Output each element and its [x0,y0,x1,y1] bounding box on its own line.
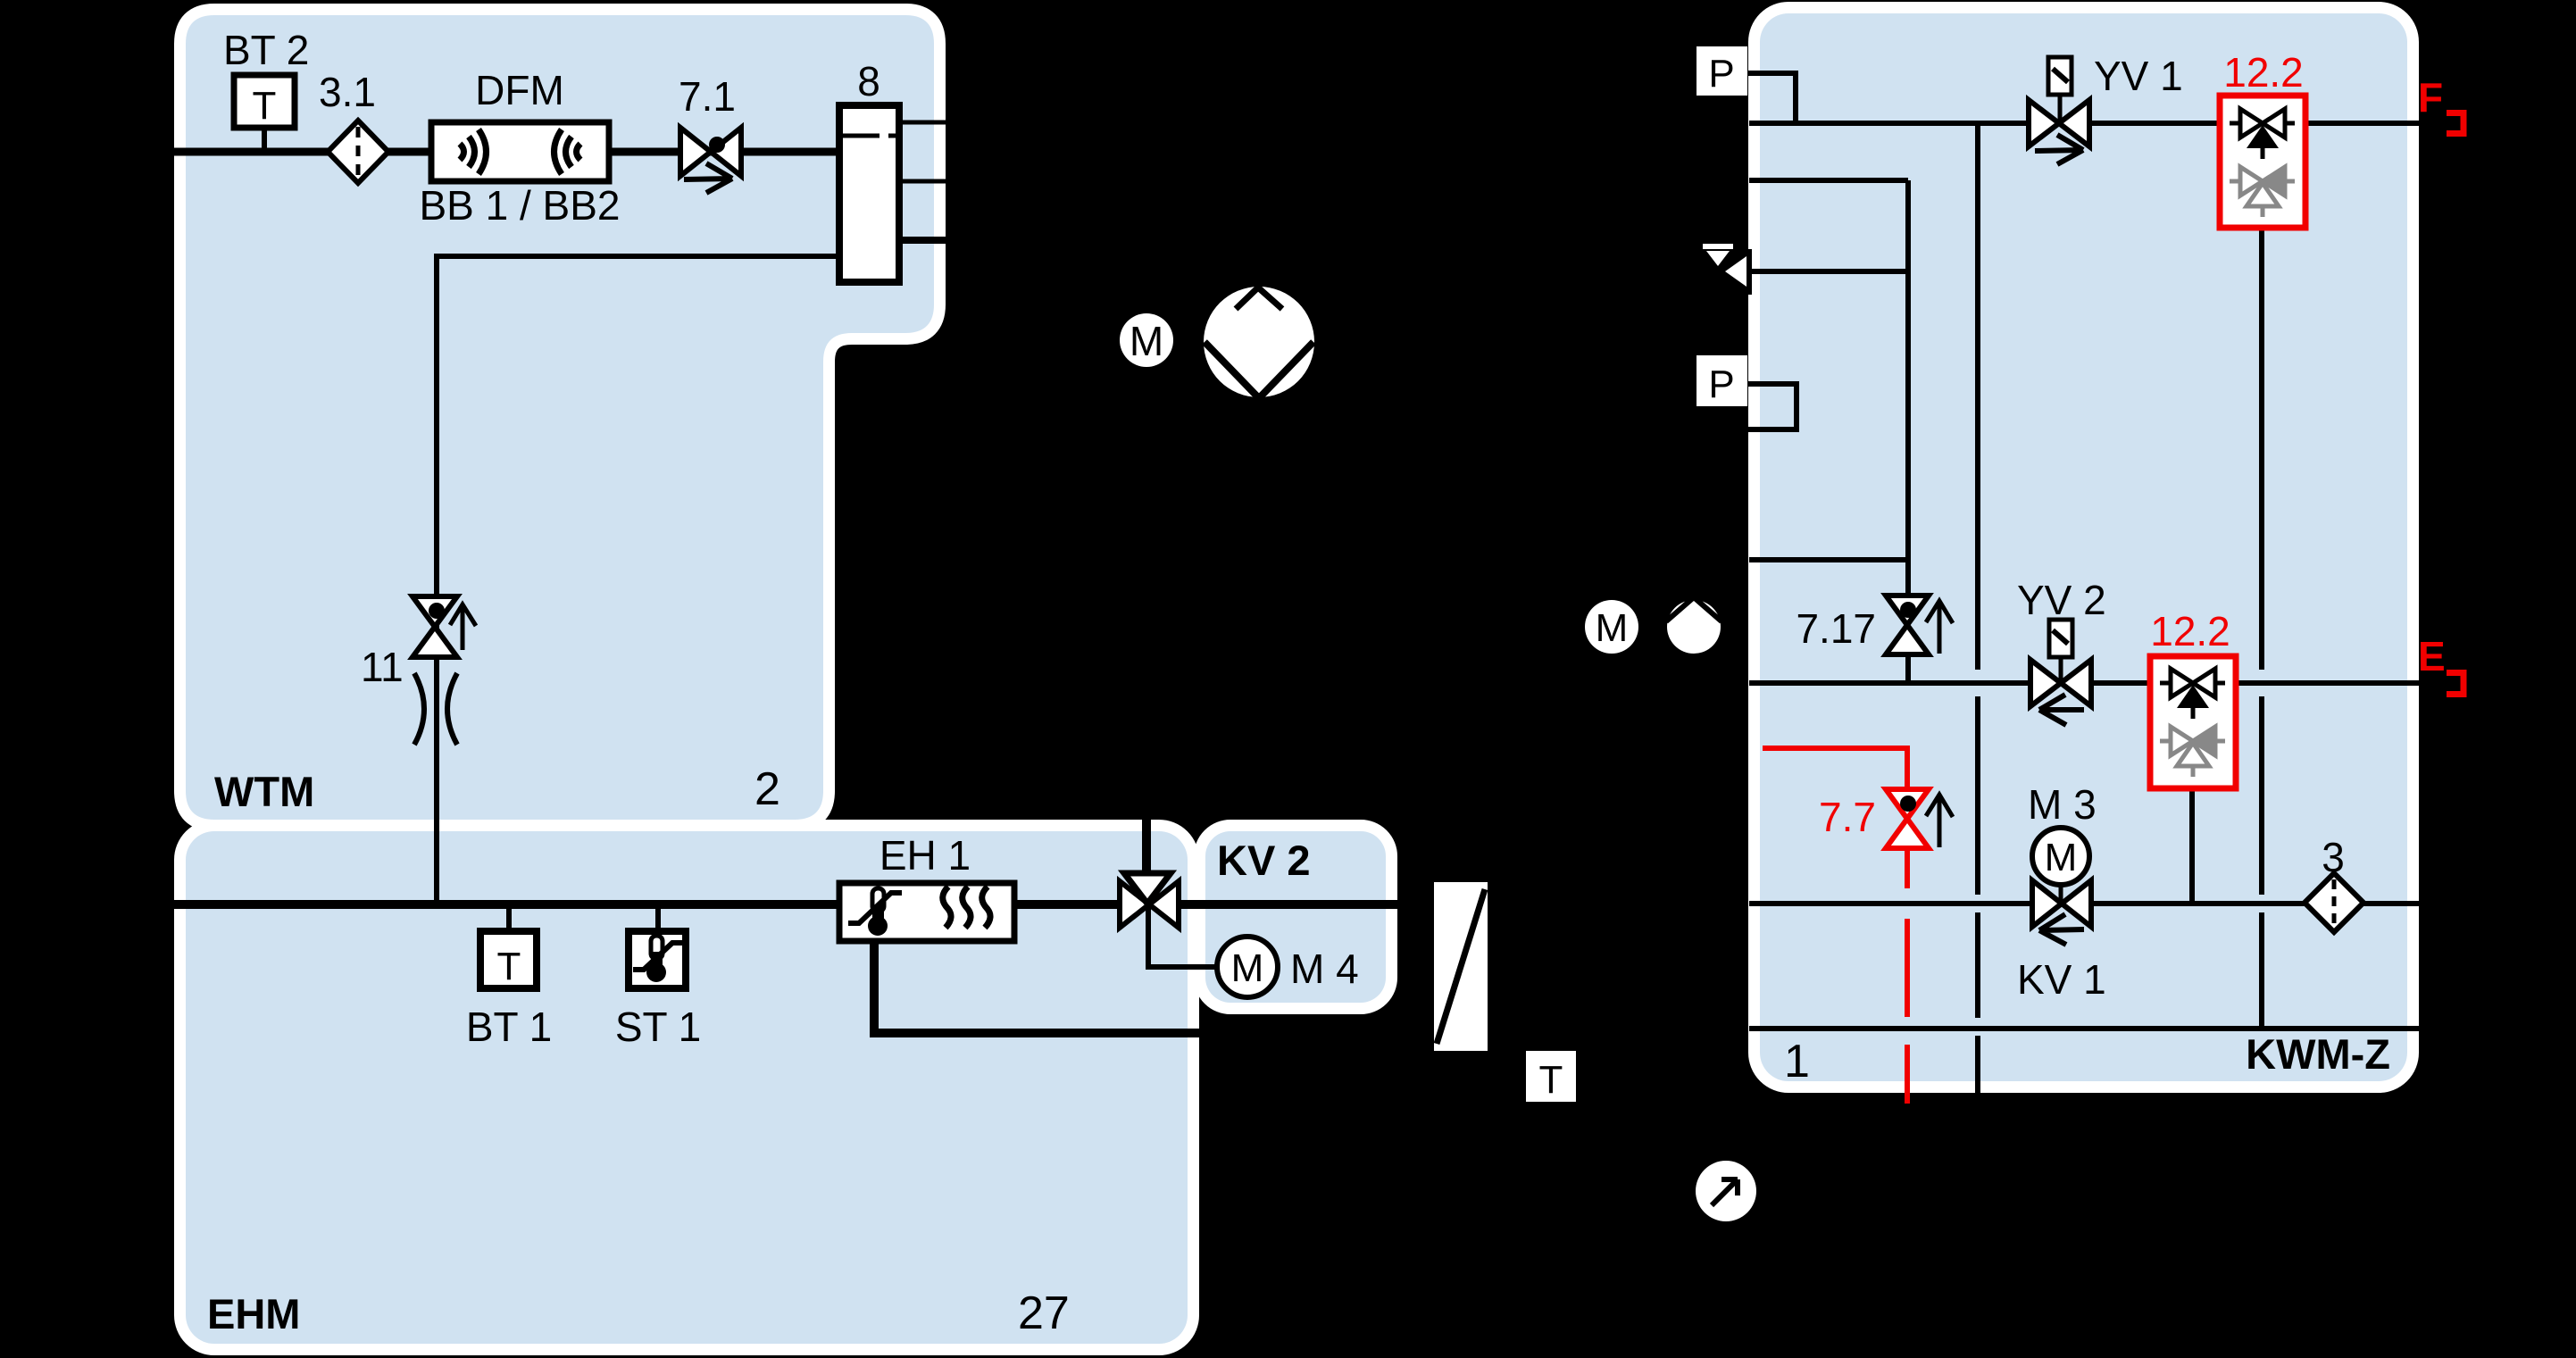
svg-text:BT 1: BT 1 [466,1004,552,1050]
svg-text:KV 1: KV 1 [2017,956,2106,1003]
svg-text:F: F [2418,74,2443,121]
svg-text:ST 1: ST 1 [615,1004,701,1050]
svg-text:8: 8 [857,58,880,104]
svg-text:3: 3 [2322,834,2345,880]
svg-text:M 3: M 3 [2028,781,2097,828]
svg-text:12.2: 12.2 [2223,49,2304,96]
svg-text:WTM: WTM [214,768,314,815]
svg-text:M: M [2045,836,2078,879]
svg-text:1: 1 [1784,1036,1810,1087]
svg-text:11: 11 [361,644,404,690]
svg-text:3.1: 3.1 [319,69,376,115]
svg-text:EH 1: EH 1 [880,832,971,879]
svg-text:M: M [1130,318,1163,364]
svg-text:2: 2 [754,763,780,815]
svg-text:EHM: EHM [207,1290,300,1337]
svg-text:7.7: 7.7 [1819,794,1876,840]
svg-text:27: 27 [1018,1287,1070,1339]
svg-text:BT 2: BT 2 [223,27,309,73]
svg-text:BB 1 / BB2: BB 1 / BB2 [419,182,620,229]
svg-text:YV 2: YV 2 [2017,577,2106,623]
svg-text:7.17: 7.17 [1796,605,1876,652]
svg-text:E: E [2418,633,2446,679]
svg-text:YV 1: YV 1 [2094,53,2183,99]
svg-text:T: T [497,945,521,988]
svg-text:DFM: DFM [475,67,564,113]
svg-text:P: P [1708,362,1734,406]
svg-text:KWM-Z: KWM-Z [2246,1030,2390,1078]
svg-text:M: M [1596,606,1629,650]
svg-text:P: P [1708,52,1734,96]
svg-text:T: T [253,84,277,128]
svg-text:KV 2: KV 2 [1217,837,1311,884]
svg-text:12.2: 12.2 [2150,608,2230,654]
svg-text:M: M [1231,946,1264,990]
svg-text:7.1: 7.1 [679,73,736,120]
svg-text:M 4: M 4 [1290,946,1359,992]
svg-text:T: T [1539,1058,1563,1102]
